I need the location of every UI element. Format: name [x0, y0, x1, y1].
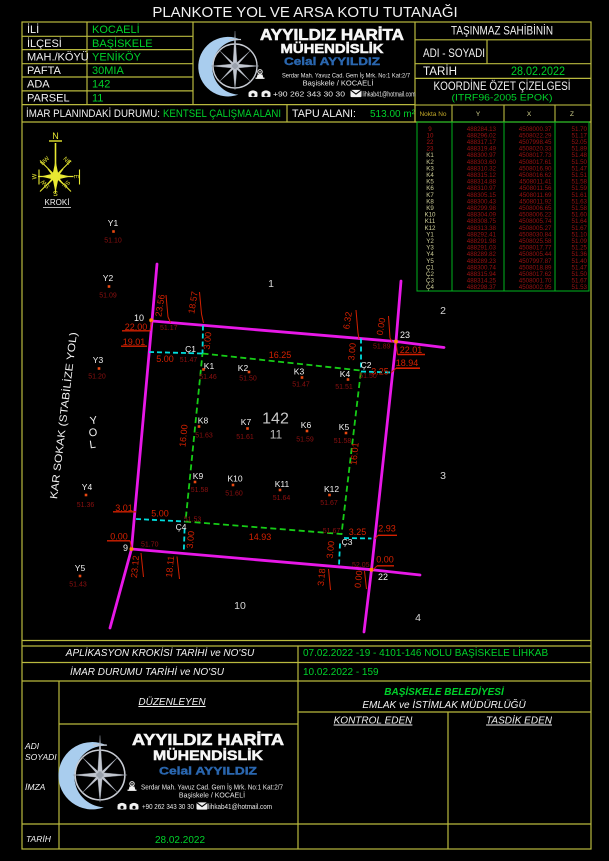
- svg-text:30MIA: 30MIA: [92, 65, 124, 77]
- svg-text:X: X: [527, 111, 532, 118]
- svg-text:4: 4: [415, 612, 421, 624]
- svg-text:22: 22: [378, 572, 388, 582]
- svg-text:MÜHENDİSLİK: MÜHENDİSLİK: [153, 748, 263, 763]
- svg-text:Ç3: Ç3: [342, 537, 353, 547]
- svg-text:51.10: 51.10: [104, 238, 122, 245]
- svg-text:14.93: 14.93: [249, 532, 272, 542]
- svg-text:Z: Z: [570, 111, 574, 118]
- svg-text:Başiskele / KOCAELİ: Başiskele / KOCAELİ: [303, 79, 374, 88]
- svg-text:2.93: 2.93: [378, 524, 396, 534]
- svg-text:E: E: [72, 174, 78, 178]
- svg-text:ADI: ADI: [24, 741, 40, 751]
- svg-text:YENİKÖY: YENİKÖY: [92, 51, 142, 64]
- svg-text:11: 11: [92, 92, 103, 104]
- svg-text:K6: K6: [301, 420, 312, 430]
- svg-text:K8: K8: [198, 416, 209, 426]
- svg-text:KONTROL EDEN: KONTROL EDEN: [334, 716, 413, 727]
- svg-text:51.63: 51.63: [195, 433, 213, 440]
- svg-text:51.89: 51.89: [373, 344, 391, 351]
- svg-text:İMAR DURUMU TARİHİ ve NO'SU: İMAR DURUMU TARİHİ ve NO'SU: [70, 666, 225, 678]
- svg-text:51.36: 51.36: [77, 502, 95, 509]
- svg-text:K5: K5: [339, 422, 350, 432]
- svg-text:0.00: 0.00: [110, 532, 128, 542]
- svg-text:APLİKASYON KROKİSİ TARİHİ ve N: APLİKASYON KROKİSİ TARİHİ ve NO'SU: [65, 647, 255, 659]
- svg-text:KROKİ: KROKİ: [45, 198, 70, 207]
- svg-text:3.25: 3.25: [349, 527, 367, 537]
- svg-text:K9: K9: [193, 471, 204, 481]
- svg-text:3.00: 3.00: [346, 342, 358, 360]
- svg-text:K1: K1: [204, 361, 215, 371]
- svg-text:51.09: 51.09: [99, 293, 117, 300]
- svg-text:51.70: 51.70: [141, 542, 159, 549]
- svg-text:BAŞİSKELE: BAŞİSKELE: [92, 37, 153, 50]
- svg-text:W: W: [33, 173, 39, 179]
- svg-text:3.00: 3.00: [185, 530, 197, 548]
- svg-text:İMAR PLANINDAKİ DURUMU:: İMAR PLANINDAKİ DURUMU:: [26, 107, 160, 120]
- svg-text:Serdar Mah. Yavuz Cad. Gem İş: Serdar Mah. Yavuz Cad. Gem İş Mrk. No:1 …: [141, 783, 283, 792]
- svg-text:Ç4: Ç4: [176, 522, 187, 532]
- svg-text:(ITRF96-2005 EPOK): (ITRF96-2005 EPOK): [452, 93, 553, 104]
- svg-text:PLANKOTE YOL VE ARSA KOTU TUTA: PLANKOTE YOL VE ARSA KOTU TUTANAĞI: [152, 4, 457, 21]
- svg-text:51.67: 51.67: [323, 528, 341, 535]
- svg-text:1: 1: [268, 278, 274, 290]
- svg-text:+90 262 343 30 30: +90 262 343 30 30: [273, 90, 345, 99]
- svg-text:Y4: Y4: [82, 482, 93, 492]
- svg-text:51.43: 51.43: [69, 582, 87, 589]
- svg-text:51.60: 51.60: [225, 491, 243, 498]
- svg-text:0.00: 0.00: [376, 555, 394, 565]
- svg-text:İLÇESİ: İLÇESİ: [27, 37, 62, 50]
- svg-text:KOORDİNE ÖZET ÇİZELGESİ: KOORDİNE ÖZET ÇİZELGESİ: [434, 80, 571, 93]
- svg-text:Y2: Y2: [103, 273, 114, 283]
- svg-text:K11: K11: [275, 479, 290, 489]
- svg-text:0.00: 0.00: [353, 570, 365, 588]
- svg-text:İLİ: İLİ: [27, 23, 39, 36]
- svg-text:ADA: ADA: [27, 79, 50, 91]
- svg-text:DÜZENLEYEN: DÜZENLEYEN: [138, 696, 206, 708]
- svg-text:513.00 m²: 513.00 m²: [370, 109, 416, 120]
- svg-text:Ç4: Ç4: [426, 284, 434, 291]
- svg-text:51.47: 51.47: [292, 382, 310, 389]
- svg-text:K7: K7: [241, 417, 252, 427]
- svg-text:Başiskele / KOCAELİ: Başiskele / KOCAELİ: [179, 791, 245, 800]
- svg-text:16.25: 16.25: [269, 350, 292, 360]
- svg-text:51.53: 51.53: [184, 517, 202, 524]
- svg-text:KOCAELİ: KOCAELİ: [92, 23, 140, 36]
- svg-text:3.00: 3.00: [325, 540, 337, 558]
- svg-text:K10: K10: [227, 474, 242, 484]
- svg-text:N: N: [52, 131, 59, 141]
- svg-text:lihkab41@hotmail.com: lihkab41@hotmail.com: [363, 92, 416, 99]
- svg-text:11: 11: [270, 428, 283, 442]
- svg-text:51.47: 51.47: [180, 357, 198, 364]
- svg-text:Y3: Y3: [93, 355, 104, 365]
- svg-text:3: 3: [440, 470, 446, 482]
- svg-text:EMLAK ve İSTİMLAK MÜDÜRLÜĞÜ: EMLAK ve İSTİMLAK MÜDÜRLÜĞÜ: [362, 698, 526, 711]
- svg-text:10: 10: [234, 600, 246, 612]
- svg-text:K4: K4: [340, 369, 351, 379]
- svg-text:18.94: 18.94: [396, 358, 419, 368]
- svg-text:K2: K2: [238, 363, 249, 373]
- svg-text:TARİH: TARİH: [26, 834, 52, 844]
- svg-text:Y1: Y1: [108, 218, 119, 228]
- svg-text:2: 2: [440, 305, 446, 317]
- svg-text:Ç1: Ç1: [185, 344, 196, 354]
- svg-text:K3: K3: [294, 367, 305, 377]
- svg-text:3.18: 3.18: [316, 568, 328, 586]
- svg-text:5.00: 5.00: [156, 354, 174, 364]
- svg-text:Nokta No: Nokta No: [419, 111, 446, 118]
- svg-text:51.53: 51.53: [572, 284, 588, 291]
- svg-text:52.05: 52.05: [352, 562, 370, 569]
- svg-text:51.20: 51.20: [88, 374, 106, 381]
- svg-text:TAPU ALANI:: TAPU ALANI:: [292, 108, 356, 120]
- svg-text:488298.37: 488298.37: [467, 284, 497, 291]
- svg-text:51.58: 51.58: [191, 487, 209, 494]
- svg-text:4508002.95: 4508002.95: [519, 284, 552, 291]
- svg-text:TAŞINMAZ SAHİBİNİN: TAŞINMAZ SAHİBİNİN: [451, 25, 553, 38]
- svg-text:9: 9: [123, 543, 128, 553]
- svg-text:MAH./KÖYÜ: MAH./KÖYÜ: [27, 52, 89, 64]
- svg-text:S: S: [53, 189, 58, 198]
- svg-text:51.59: 51.59: [296, 437, 314, 444]
- svg-text:51.58: 51.58: [334, 438, 352, 445]
- svg-text:PAFTA: PAFTA: [27, 65, 61, 77]
- svg-text:PARSEL: PARSEL: [27, 92, 70, 104]
- svg-text:BAŞİSKELE BELEDİYESİ: BAŞİSKELE BELEDİYESİ: [384, 685, 505, 698]
- svg-text:51.67: 51.67: [320, 500, 338, 507]
- svg-text:142: 142: [92, 79, 110, 91]
- svg-text:İMZA: İMZA: [25, 782, 46, 792]
- svg-text:07.02.2022 -19 - 4101-146 NOLU: 07.02.2022 -19 - 4101-146 NOLU BAŞİSKELE…: [303, 646, 548, 659]
- svg-text:KENTSEL ÇALIŞMA ALANI: KENTSEL ÇALIŞMA ALANI: [163, 108, 281, 120]
- svg-text:lihkab41@hotmail.com: lihkab41@hotmail.com: [208, 804, 272, 811]
- svg-text:3.00: 3.00: [202, 331, 214, 349]
- svg-text:MÜHENDİSLİK: MÜHENDİSLİK: [281, 41, 384, 56]
- svg-text:3.25: 3.25: [371, 367, 389, 377]
- svg-text:TARİH: TARİH: [423, 65, 457, 78]
- svg-text:TASDİK EDEN: TASDİK EDEN: [486, 715, 553, 727]
- svg-text:22.01: 22.01: [400, 345, 423, 355]
- svg-text:Ç2: Ç2: [361, 360, 372, 370]
- svg-text:142: 142: [262, 411, 289, 428]
- svg-text:+90 262 343 30 30: +90 262 343 30 30: [142, 804, 194, 811]
- svg-text:28.02.2022: 28.02.2022: [511, 66, 565, 78]
- svg-text:51.17: 51.17: [160, 325, 178, 332]
- svg-text:Y: Y: [476, 111, 481, 118]
- svg-text:51.61: 51.61: [236, 434, 254, 441]
- svg-text:23: 23: [400, 330, 410, 340]
- svg-text:K12: K12: [324, 484, 339, 494]
- svg-text:Celal AYYILDIZ: Celal AYYILDIZ: [284, 56, 380, 68]
- svg-text:AYYILDIZ HARİTA: AYYILDIZ HARİTA: [132, 731, 284, 749]
- svg-text:5.00: 5.00: [151, 509, 169, 519]
- svg-text:10.02.2022 - 159: 10.02.2022 - 159: [303, 667, 379, 678]
- svg-text:51.51: 51.51: [335, 384, 353, 391]
- svg-text:SOYADI: SOYADI: [25, 752, 57, 762]
- svg-text:Celal AYYILDIZ: Celal AYYILDIZ: [159, 766, 257, 778]
- svg-text:51.50: 51.50: [239, 376, 257, 383]
- svg-text:51.46: 51.46: [199, 374, 217, 381]
- svg-text:51.64: 51.64: [273, 495, 291, 502]
- svg-text:28.02.2022: 28.02.2022: [155, 835, 205, 846]
- svg-text:Y5: Y5: [75, 563, 86, 573]
- svg-text:ADI - SOYADI: ADI - SOYADI: [423, 48, 485, 60]
